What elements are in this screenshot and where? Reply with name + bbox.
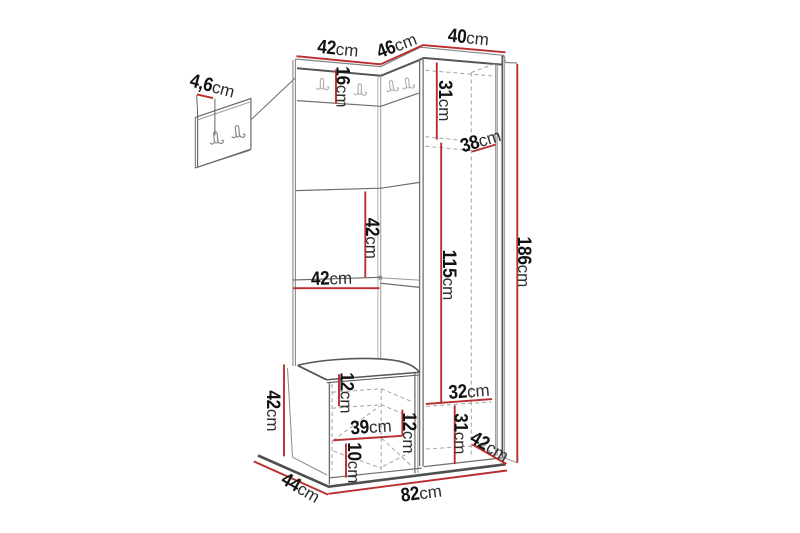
svg-text:42cm: 42cm [311,267,353,290]
svg-text:16cm: 16cm [332,66,354,107]
svg-text:12cm: 12cm [335,372,357,413]
svg-text:12cm: 12cm [398,412,420,453]
svg-text:186cm: 186cm [513,237,535,288]
svg-text:32cm: 32cm [448,379,491,404]
svg-text:10cm: 10cm [343,442,365,483]
svg-text:115cm: 115cm [438,250,460,301]
svg-text:39cm: 39cm [350,414,393,439]
svg-text:31cm: 31cm [434,80,456,121]
svg-text:42cm: 42cm [361,218,383,259]
svg-text:42cm: 42cm [262,390,284,431]
svg-text:31cm: 31cm [450,413,472,454]
